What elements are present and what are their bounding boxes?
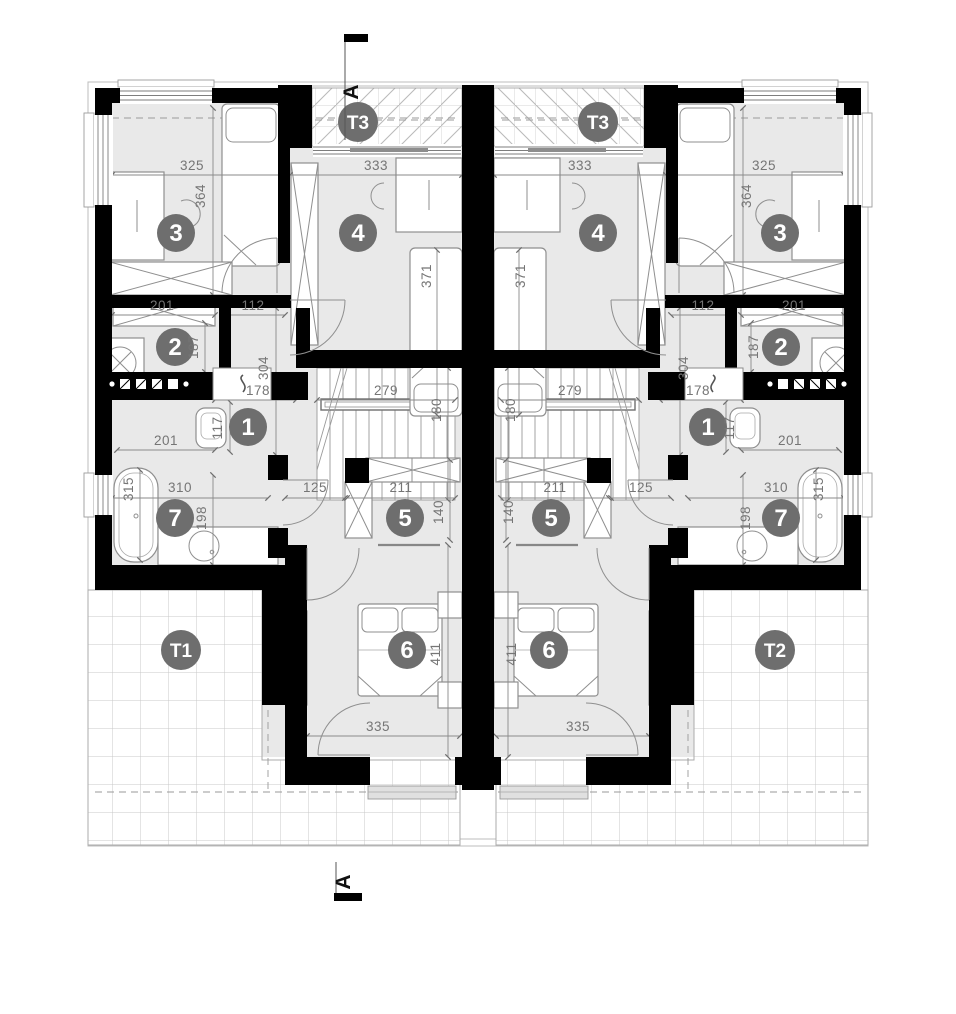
room2-number-right: 2 [774,334,787,361]
dim-bedroom-depth: 411 [428,642,443,665]
dim-room3-width: 325 [752,158,776,173]
section-letter-bottom: A [332,874,355,889]
dim-hall-width: 178 [246,383,270,398]
dim-wardrobe-width: 201 [782,298,806,313]
dim-closet-depth: 140 [501,500,516,524]
balcony-label-right: T3 [587,113,609,134]
room4-number-right: 4 [591,220,605,247]
dim-wc-width: 201 [778,433,802,448]
dim-niche-width: 112 [241,298,264,313]
dim-landing-width: 125 [629,480,653,495]
dim-wardrobe-depth: 187 [186,335,201,359]
floor-plan-canvas: 3 4 2 1 7 5 6 3 4 2 1 7 5 6 T3 T3 T1 [0,0,956,1014]
dim-landing-width: 125 [303,480,327,495]
room3-number-right: 3 [773,220,786,247]
dim-room3-depth: 364 [193,184,208,208]
room5-number-right: 5 [544,505,557,532]
dim-stair-run: 279 [374,383,398,398]
dim-bath-tub: 315 [121,477,136,501]
dim-niche-width: 112 [691,298,714,313]
room3-number-left: 3 [169,220,182,247]
room2-number-left: 2 [168,334,181,361]
dim-room4-width: 333 [364,158,388,173]
dim-room3-depth: 364 [739,184,754,208]
unit-left [84,80,478,845]
nightstand [438,592,462,618]
room1-number-right: 1 [701,414,714,441]
room7-number-left: 7 [168,505,181,532]
dim-closet-width: 211 [389,480,412,495]
terrace-label-left: T1 [170,641,193,662]
dim-bath-tub: 315 [811,477,826,501]
dim-stair-run: 279 [558,383,582,398]
unit-right [478,80,872,845]
dim-room4-bed: 371 [513,264,528,288]
dim-room4-width: 333 [568,158,592,173]
dim-wc-depth: 117 [722,416,737,439]
nightstand [438,682,462,708]
dim-bedroom-width: 335 [566,719,590,734]
room6-number-left: 6 [400,637,413,664]
dim-hall-depth: 304 [676,356,691,380]
dim-wc-depth: 117 [210,416,225,439]
section-marker-bottom: A [332,862,362,901]
room1-number-left: 1 [241,414,254,441]
balcony-label-left: T3 [347,113,369,134]
room7-number-right: 7 [774,505,787,532]
dim-room3-width: 325 [180,158,204,173]
room5-number-left: 5 [398,505,411,532]
dim-hall-width: 178 [686,383,710,398]
dim-room4-bed: 371 [419,264,434,288]
dim-bath-width: 310 [168,480,192,495]
dim-closet-depth: 140 [431,500,446,524]
dim-stair-width: 180 [429,398,444,422]
dim-bedroom-width: 335 [366,719,390,734]
floor-plan-drawing: 3 4 2 1 7 5 6 3 4 2 1 7 5 6 T3 T3 T1 [0,0,956,1014]
dim-wardrobe-depth: 187 [746,335,761,359]
dim-stair-width: 180 [503,398,518,422]
dim-bath-depth: 198 [738,506,753,530]
dim-bedroom-depth: 411 [504,642,519,665]
dim-closet-width: 211 [543,480,566,495]
section-letter-top: A [340,84,363,99]
single-bed [410,248,462,416]
dim-bath-depth: 198 [194,506,209,530]
balcony-area [312,88,462,146]
room4-number-left: 4 [351,220,365,247]
dim-wardrobe-width: 201 [150,298,174,313]
dim-hall-depth: 304 [256,356,271,380]
terrace-step [368,786,456,799]
dim-bath-width: 310 [764,480,788,495]
room6-number-right: 6 [542,637,555,664]
terrace-label-right: T2 [764,641,786,662]
dim-wc-width: 201 [154,433,178,448]
